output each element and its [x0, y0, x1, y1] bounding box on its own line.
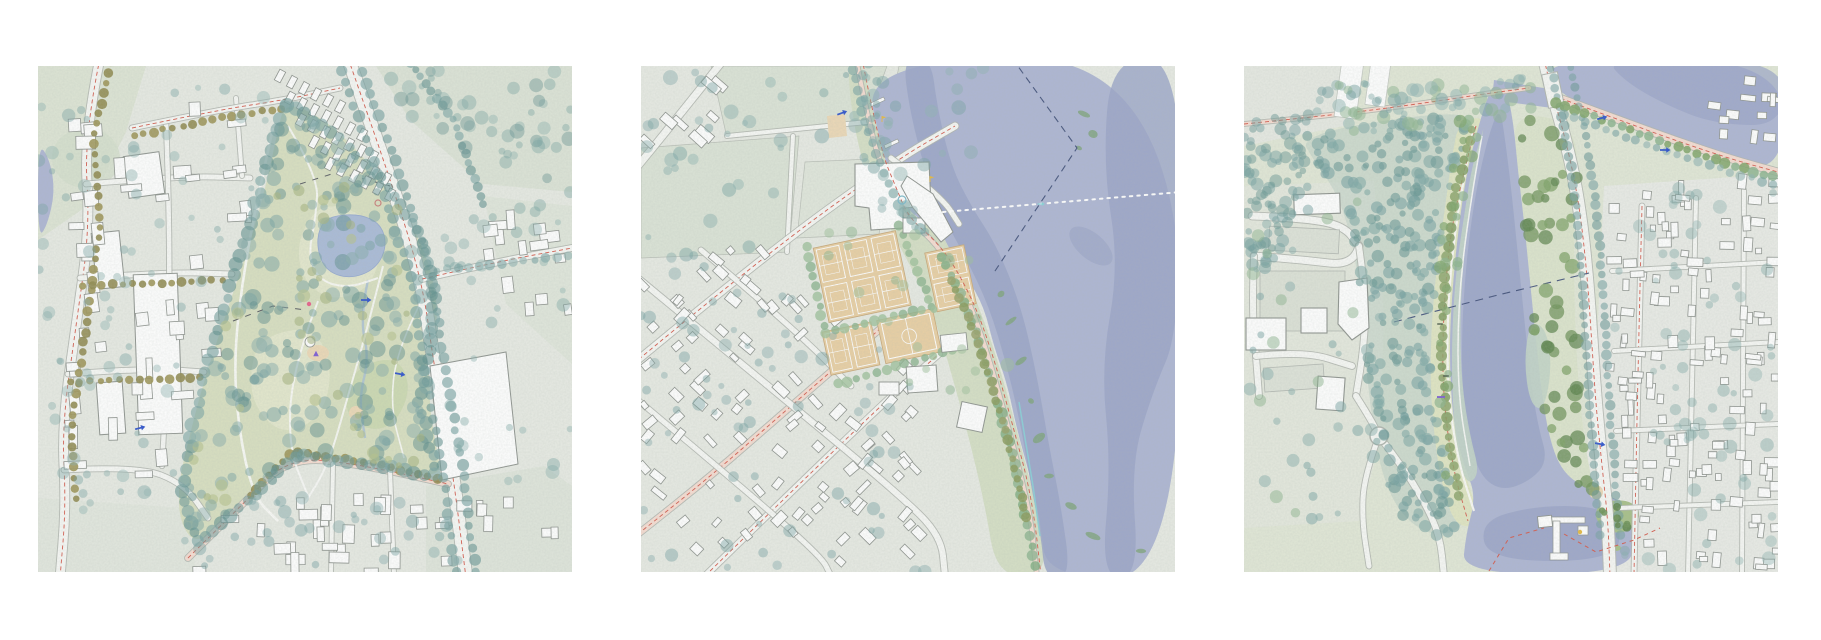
paper-grain [641, 66, 1175, 572]
panel-riverfront-svg [641, 66, 1175, 572]
site-plan-panel-park [38, 66, 572, 572]
site-plan-panel-lakepark [1244, 66, 1778, 572]
panel-park-svg [38, 66, 572, 572]
panel-lakepark-svg [1244, 66, 1778, 572]
triptych-stage: Landscape masterplan triptych — three ur… [0, 0, 1821, 640]
paper-grain [1244, 66, 1778, 572]
site-plan-panel-riverfront [641, 66, 1175, 572]
page-title: Landscape masterplan triptych — three ur… [0, 0, 1, 1]
paper-grain [38, 66, 572, 572]
